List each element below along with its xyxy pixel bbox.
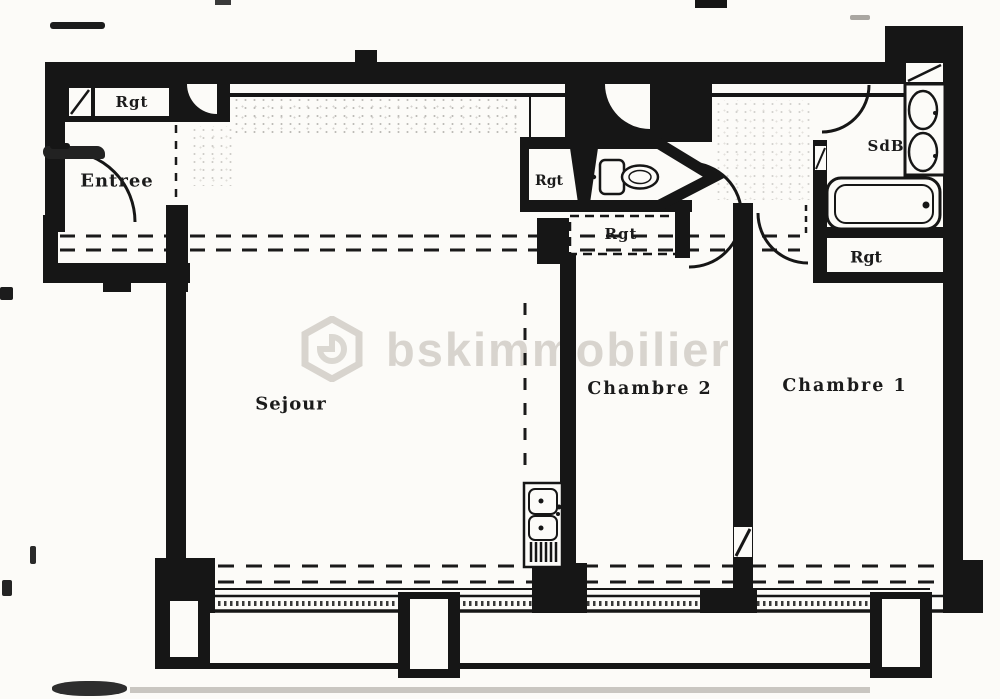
kitchen-sink-icon [524, 483, 562, 567]
scan-artifact [695, 0, 727, 8]
label-chambre2: Chambre 2 [587, 379, 712, 399]
scan-artifact [130, 687, 870, 693]
label-entree: Entree [80, 171, 154, 192]
washbasin-cabinet [905, 84, 945, 175]
toilet-icon [592, 160, 658, 194]
floor-plan-page: bskimmobilier [0, 0, 1000, 699]
wall-openings [68, 63, 943, 557]
scan-artifact [2, 580, 12, 596]
scan-artifact [215, 0, 231, 5]
walls [43, 26, 983, 669]
washbasin-icon [909, 133, 937, 171]
bathtub-icon [827, 178, 940, 229]
dashed-lines [60, 125, 938, 582]
label-chambre1: Chambre 1 [782, 376, 907, 396]
label-rgt-entry: Rgt [116, 93, 149, 111]
washbasin-icon [909, 91, 937, 129]
scan-artifact [50, 143, 70, 149]
scan-artifact [52, 681, 127, 696]
scan-artifact [30, 546, 36, 564]
scan-artifact [850, 15, 870, 20]
label-sejour: Sejour [255, 394, 327, 415]
scan-artifact [0, 287, 13, 300]
floor-plan-drawing [0, 0, 1000, 699]
label-rgt-hall: Rgt [605, 225, 638, 243]
wc-angled-wall [658, 143, 714, 206]
label-sdb: SdB [868, 137, 905, 155]
scan-artifact [50, 22, 105, 29]
label-rgt-sdb: Rgt [850, 248, 882, 267]
label-rgt-wc: Rgt [535, 173, 563, 189]
